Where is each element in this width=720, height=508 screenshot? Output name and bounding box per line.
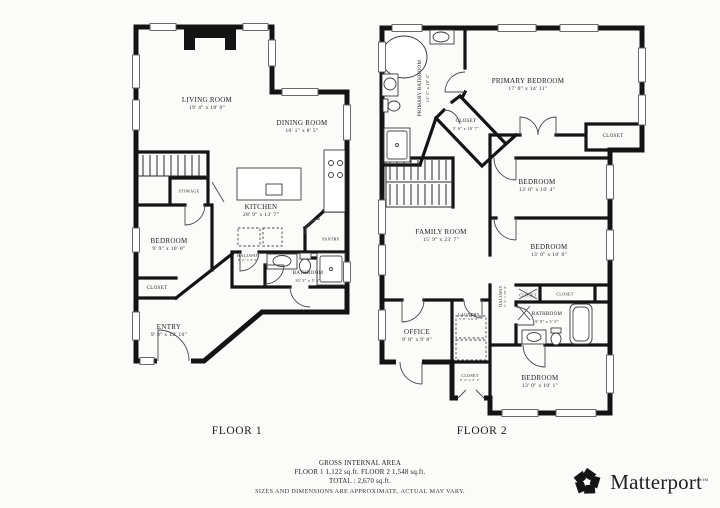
room-name: KITCHEN — [243, 203, 279, 212]
floor1-stairs-icon — [138, 155, 206, 176]
room-name: LIVING ROOM — [182, 96, 232, 105]
toilet-icon — [551, 333, 561, 345]
room-label-hallway-f2: HALLWAY 2' 4" x 10' 9" — [498, 285, 508, 307]
entry-door-gap — [157, 357, 191, 365]
room-name: BEDROOM — [518, 178, 555, 187]
floorplan-drawing — [0, 0, 720, 508]
toilet-icon — [388, 101, 400, 111]
room-label-entry: ENTRY 9' 8" x 12' 10" — [151, 323, 187, 339]
fireplace-icon — [184, 27, 236, 50]
room-dims: 17' 0" x 14' 11" — [492, 86, 565, 93]
toilet-tank-icon — [383, 99, 388, 112]
bath-sink-icon — [527, 333, 541, 342]
room-dims: 5' 6" x 10' 7" — [453, 126, 479, 131]
room-dims: 5' 8" x 6' 8" — [458, 317, 480, 322]
floorplan-page: LIVING ROOM 19' 4" x 18' 0" DINING ROOM … — [0, 0, 720, 508]
sink-icon — [433, 32, 449, 42]
room-name: BEDROOM — [521, 374, 558, 383]
room-label-closet-bottom: CLOSET 6' 2" x 5' 1" — [460, 373, 480, 383]
primary-bath-door-arc — [445, 72, 465, 92]
room-label-kitchen: KITCHEN 28' 9" x 13' 7" — [243, 203, 279, 219]
room-dims: 9' 8" x 12' 10" — [151, 332, 187, 339]
room-label-office: OFFICE 9' 8" x 9' 8" — [402, 328, 432, 344]
floor2-title: FLOOR 2 — [457, 425, 508, 437]
room-dims: 13' 0" x 10' 4" — [518, 187, 555, 194]
dryer-dashed-icon — [456, 340, 486, 360]
room-label-closet-bath: CLOSET — [556, 291, 573, 296]
room-label-bedroom3: BEDROOM 13' 0" x 10' 1" — [521, 374, 558, 390]
hall-door-marks — [518, 306, 530, 320]
room-label-pantry: PANTRY — [322, 236, 340, 241]
room-name: BEDROOM — [150, 237, 187, 246]
room-dims: 11' 5" x 10' 4" — [425, 60, 430, 116]
room-name: BEDROOM — [530, 243, 567, 252]
appliance-dashed-icon — [238, 228, 260, 246]
appliance-dashed-icon — [263, 228, 282, 246]
room-name: PANTRY — [322, 236, 340, 241]
room-name: OFFICE — [402, 328, 432, 337]
room-label-closet-small: CLOSET — [519, 292, 536, 297]
room-dims: 6' 2" x 3' 4" — [237, 258, 259, 263]
bedroom1-door-arc — [494, 158, 516, 180]
room-name: CLOSET — [603, 134, 624, 141]
room-dims: 10' 5" x 5' 2" — [293, 278, 323, 283]
bedroom3-door-arc — [523, 345, 545, 367]
room-dims: 28' 9" x 13' 7" — [243, 212, 279, 219]
room-label-closet-right: CLOSET — [603, 134, 624, 141]
room-name: DINING ROOM — [277, 119, 328, 128]
room-name: STORAGE — [179, 188, 200, 193]
room-label-closet-f1: CLOSET — [147, 286, 168, 293]
brand-wordmark: Matterport — [610, 470, 702, 494]
room-label-bathroom-f2: BATHROOM 9' 9" x 5' 9" — [532, 312, 562, 324]
room-name: PRIMARY BEDROOM — [492, 77, 565, 86]
room-name: FAMILY ROOM — [415, 228, 466, 237]
room-label-laundry: LAUNDRY 5' 8" x 6' 8" — [458, 312, 480, 322]
trademark-symbol: ™ — [702, 478, 708, 484]
room-name: CLOSET — [556, 291, 573, 296]
room-dims: 9' 9" x 10' 0" — [150, 246, 187, 253]
room-dims: 13' 0" x 10' 1" — [521, 383, 558, 390]
room-label-dining-room: DINING ROOM 10' 1" x 8' 5" — [277, 119, 328, 135]
room-dims: 10' 1" x 8' 5" — [277, 128, 328, 135]
island-sink-icon — [266, 184, 282, 195]
toilet-tank-icon — [300, 253, 311, 259]
toilet-tank-icon — [551, 328, 561, 333]
room-label-bedroom-f1: BEDROOM 9' 9" x 10' 0" — [150, 237, 187, 253]
room-dims: 9' 9" x 5' 9" — [532, 319, 562, 324]
room-label-primary-bathroom: PRIMARY BATHROOM 11' 5" x 10' 4" — [418, 60, 430, 116]
matterport-logo: Matterport™ — [571, 466, 708, 498]
bedroom-door-arc — [185, 205, 205, 225]
room-label-walk-closet: CLOSET 5' 6" x 10' 7" — [453, 119, 479, 131]
room-name: ENTRY — [151, 323, 187, 332]
room-name: CLOSET — [147, 286, 168, 293]
office-door-arc — [402, 300, 424, 322]
room-label-bathroom-f1: BATHROOM 10' 5" x 5' 2" — [293, 271, 323, 283]
room-dims: 15' 9" x 23' 7" — [415, 237, 466, 244]
matterport-pinwheel-icon — [571, 466, 603, 498]
room-name: CLOSET — [519, 292, 536, 297]
room-label-bedroom1: BEDROOM 13' 0" x 10' 4" — [518, 178, 555, 194]
room-label-living-room: LIVING ROOM 19' 4" x 18' 0" — [182, 96, 232, 112]
floor1-title: FLOOR 1 — [212, 425, 263, 437]
room-label-bedroom2: BEDROOM 13' 0" x 10' 0" — [530, 243, 567, 259]
pantry-door-arc — [305, 219, 320, 234]
room-label-hallway-f1: HALLWAY 6' 2" x 3' 4" — [237, 253, 259, 263]
shower-icon — [384, 128, 410, 162]
corridor-door-arc — [290, 287, 310, 307]
sink-icon — [384, 78, 396, 90]
room-dims: 6' 2" x 5' 1" — [460, 378, 480, 383]
room-dims: 13' 0" x 10' 0" — [530, 252, 567, 259]
room-dims: 2' 4" x 10' 9" — [503, 285, 508, 307]
storage-door-leaf — [212, 182, 224, 202]
room-label-storage: STORAGE — [179, 188, 200, 193]
room-dims: 9' 8" x 9' 8" — [402, 337, 432, 344]
kitchen-counter-icon — [324, 150, 345, 212]
closet-door-gap — [458, 395, 484, 402]
double-door-arc — [520, 117, 538, 135]
bedroom2-door-arc — [494, 218, 516, 240]
room-label-family-room: FAMILY ROOM 15' 9" x 23' 7" — [415, 228, 466, 244]
room-label-primary-bedroom: PRIMARY BEDROOM 17' 0" x 14' 11" — [492, 77, 565, 93]
double-door-arc — [538, 117, 556, 135]
room-dims: 19' 4" x 18' 0" — [182, 105, 232, 112]
